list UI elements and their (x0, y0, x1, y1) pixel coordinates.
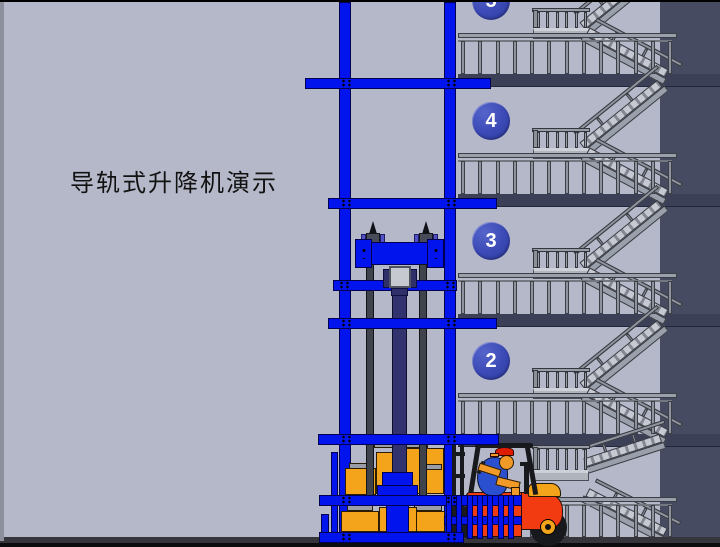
floor-railing-baluster (582, 281, 586, 314)
landing-baluster (584, 12, 587, 28)
landing-baluster (575, 252, 578, 268)
beam-bolts (339, 78, 351, 88)
mast-cross (452, 452, 465, 456)
floor-badge[interactable]: 5 (472, 0, 510, 20)
floor-railing-baluster (616, 505, 620, 537)
floor-railing-baluster (496, 161, 500, 194)
carriage-end-plate (355, 239, 372, 268)
floor-railing-baluster (513, 401, 517, 434)
gate-bar (508, 495, 514, 539)
floor-railing-baluster (530, 41, 534, 74)
beam-bolts (444, 318, 456, 328)
tie-beam (328, 198, 497, 209)
hoist-motor-cap (391, 288, 408, 296)
floor-railing-baluster (496, 281, 500, 314)
floor-railing-baluster (478, 161, 482, 194)
floor-railing-baluster (547, 401, 551, 434)
platform-stub (321, 514, 329, 534)
landing-endpost (533, 130, 538, 148)
lift-demo-stage: 导轨式升降机演示 5432 (0, 0, 720, 547)
stair-landing (533, 470, 589, 481)
floor-railing-baluster (616, 41, 620, 74)
landing-baluster (546, 252, 549, 268)
landing-baluster (575, 449, 578, 470)
stair-steps (579, 320, 662, 390)
tie-beam (305, 78, 491, 89)
hoist-motor-bracket (410, 269, 417, 288)
floor-railing-baluster (599, 281, 603, 314)
floor-railing-baluster (547, 281, 551, 314)
landing-baluster (584, 252, 587, 268)
beam-bolts (339, 318, 351, 328)
gate-bar (477, 495, 483, 539)
beam-bolts (339, 434, 351, 444)
floor-railing-baluster (547, 161, 551, 194)
landing-baluster (565, 449, 568, 470)
landing-toprail (532, 248, 590, 252)
floor-railing-baluster (461, 41, 465, 74)
landing-baluster (546, 372, 549, 388)
guide-shoe-bolts (443, 280, 455, 290)
landing-toprail (532, 368, 590, 372)
beam-bolts (444, 78, 456, 88)
landing-baluster (546, 449, 549, 470)
floor-railing-toprail (458, 393, 677, 398)
landing-endpost (533, 10, 538, 28)
floor-railing-baluster (530, 281, 534, 314)
floor-railing-baluster (530, 161, 534, 194)
floor-railing-baluster (668, 161, 672, 194)
top-border (0, 0, 720, 2)
floor-railing-baluster (599, 401, 603, 434)
floor-railing-baluster (496, 401, 500, 434)
floor-railing-baluster (582, 161, 586, 194)
page-title: 导轨式升降机演示 (70, 163, 278, 198)
cargo-crate (341, 511, 379, 532)
stair-steps (579, 200, 662, 270)
floor-railing-baluster (513, 161, 517, 194)
floor-slab (458, 74, 720, 87)
beam-bolts (339, 495, 351, 505)
floor-railing-baluster (513, 281, 517, 314)
floor-badge[interactable]: 2 (472, 342, 510, 380)
floor-slab (458, 314, 720, 327)
landing-baluster (556, 372, 559, 388)
floor-railing-baluster (634, 161, 638, 194)
rear-wheel-dot (545, 524, 551, 530)
beam-bolts (339, 198, 351, 208)
beam-bolts (339, 532, 351, 542)
landing-baluster (556, 252, 559, 268)
floor-slab (458, 194, 720, 207)
left-border (0, 2, 4, 541)
floor-railing-baluster (634, 505, 638, 537)
landing-endpost (533, 250, 538, 268)
floor-railing-baluster (461, 161, 465, 194)
driver-head (499, 455, 514, 470)
floor-railing-toprail (458, 153, 677, 158)
lift-rod (366, 264, 374, 497)
gate-bar (487, 495, 493, 539)
lift-rod (419, 264, 427, 497)
floor-railing-baluster (599, 41, 603, 74)
floor-railing-baluster (478, 401, 482, 434)
floor-railing-baluster (565, 281, 569, 314)
landing-baluster (565, 252, 568, 268)
landing-baluster (575, 372, 578, 388)
gate-bar (467, 495, 473, 539)
landing-toprail (532, 128, 590, 132)
floor-railing-baluster (599, 161, 603, 194)
beam-bolts (444, 532, 456, 542)
floor-railing-baluster (547, 41, 551, 74)
landing-toprail (532, 445, 590, 449)
floor-railing-baluster (565, 41, 569, 74)
gate-bar (498, 495, 504, 539)
floor-railing-baluster (616, 161, 620, 194)
landing-baluster (565, 12, 568, 28)
floor-railing-baluster (634, 281, 638, 314)
landing-baluster (565, 372, 568, 388)
plate-bolts (431, 243, 441, 259)
mast-cross (452, 474, 465, 478)
floor-railing-baluster (582, 401, 586, 434)
platform-center-post (386, 504, 409, 534)
floor-railing-baluster (478, 41, 482, 74)
floor-railing-baluster (565, 161, 569, 194)
landing-baluster (565, 132, 568, 148)
carriage-end-plate (427, 239, 444, 268)
landing-baluster (584, 132, 587, 148)
landing-endpost (533, 370, 538, 388)
guide-shoe-bolts (337, 280, 349, 290)
landing-baluster (575, 132, 578, 148)
landing-baluster (556, 12, 559, 28)
beam-bolts (444, 434, 456, 444)
landing-endpost (533, 447, 538, 470)
floor-railing-baluster (668, 41, 672, 74)
landing-baluster (546, 12, 549, 28)
floor-railing-baluster (496, 41, 500, 74)
floor-railing-baluster (565, 401, 569, 434)
floor-railing-baluster (616, 281, 620, 314)
landing-baluster (546, 132, 549, 148)
floor-railing-baluster (582, 505, 586, 537)
beam-bolts (444, 495, 456, 505)
floor-railing-baluster (668, 401, 672, 434)
plate-bolts (359, 243, 369, 259)
driver-cap-brim (490, 453, 499, 457)
floor-railing-baluster (478, 281, 482, 314)
landing-baluster (556, 132, 559, 148)
floor-railing-baluster (582, 41, 586, 74)
ground-base (0, 543, 720, 547)
floor-railing-baluster (599, 505, 603, 537)
floor-railing-baluster (616, 401, 620, 434)
floor-railing-toprail (458, 273, 677, 278)
floor-railing-baluster (461, 401, 465, 434)
landing-baluster (584, 372, 587, 388)
landing-baluster (575, 12, 578, 28)
floor-railing-baluster (668, 281, 672, 314)
floor-badge[interactable]: 4 (472, 102, 510, 140)
floor-railing-baluster (513, 41, 517, 74)
stair-flight-up (580, 422, 665, 475)
platform-post (331, 452, 338, 536)
hoist-motor (389, 266, 411, 288)
floor-railing-baluster (530, 401, 534, 434)
floor-railing-baluster (651, 505, 655, 537)
landing-toprail (532, 8, 590, 12)
floor-railing-baluster (668, 505, 672, 537)
stair-steps (579, 80, 662, 150)
platform-bracket (382, 472, 413, 486)
floor-badge[interactable]: 3 (472, 222, 510, 260)
floor-railing-baluster (461, 281, 465, 314)
landing-baluster (584, 449, 587, 470)
floor-railing-toprail (458, 33, 677, 38)
beam-bolts (444, 198, 456, 208)
tie-beam (328, 318, 497, 329)
landing-baluster (556, 449, 559, 470)
floor-railing-baluster (634, 41, 638, 74)
